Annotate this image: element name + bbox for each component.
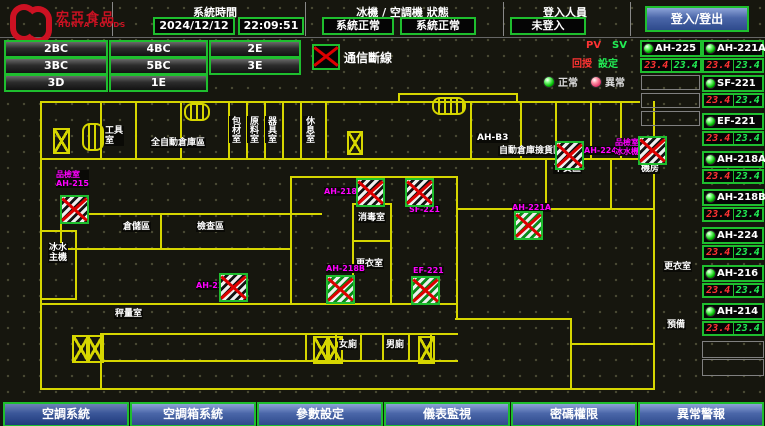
bottom-nav: 空調系統空調箱系統參數設定儀表監視密碼權限異常警報 <box>0 0 765 426</box>
nav-button[interactable]: 密碼權限 <box>511 402 637 426</box>
scada-screen: 工具 室全自動倉庫區包材室原料室器具室休息室AH-B3自動倉庫撿貨區下貨區機房消… <box>0 0 765 426</box>
nav-button[interactable]: 儀表監視 <box>384 402 510 426</box>
nav-button[interactable]: 異常警報 <box>638 402 764 426</box>
nav-button[interactable]: 參數設定 <box>257 402 383 426</box>
nav-button[interactable]: 空調系統 <box>3 402 129 426</box>
nav-button[interactable]: 空調箱系統 <box>130 402 256 426</box>
